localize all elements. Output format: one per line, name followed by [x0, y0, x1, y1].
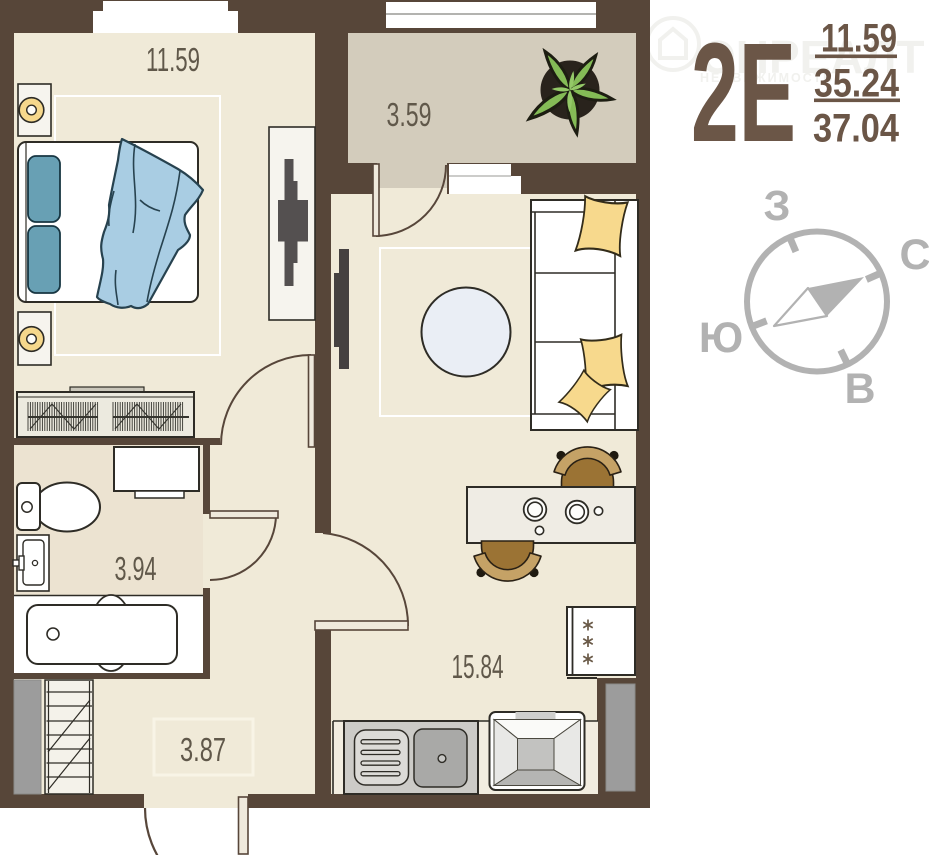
svg-text:3.94: 3.94	[115, 551, 157, 588]
svg-text:Ю: Ю	[699, 314, 743, 362]
svg-text:11.59: 11.59	[821, 17, 897, 61]
svg-text:11.59: 11.59	[146, 42, 200, 79]
svg-text:2Е: 2Е	[691, 13, 796, 171]
svg-text:3.59: 3.59	[387, 97, 432, 134]
svg-text:С: С	[899, 231, 929, 279]
svg-text:37.04: 37.04	[813, 107, 900, 151]
svg-text:З: З	[764, 182, 791, 230]
svg-text:В: В	[844, 365, 875, 413]
svg-text:15.84: 15.84	[452, 649, 504, 686]
svg-text:3.87: 3.87	[180, 732, 226, 769]
